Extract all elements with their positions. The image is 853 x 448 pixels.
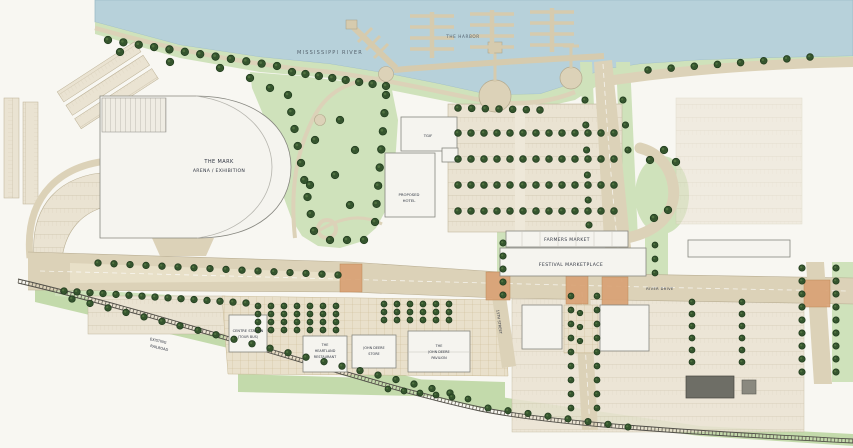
label-river: MISSISSIPPI RIVER (297, 50, 363, 56)
industrial-building (686, 376, 734, 398)
label-hotel-1: PROPOSED (399, 192, 420, 197)
label-tgif: TGIF (423, 133, 433, 138)
east-block-building-b (600, 305, 649, 351)
label-river-drive: RIVER DRIVE (646, 287, 674, 291)
label-heartland-1: THE (321, 343, 329, 347)
arena-entry-plaza (152, 238, 214, 256)
intersection-paving (566, 276, 588, 304)
label-pavilion-2: JOHN DEERE (427, 350, 449, 354)
label-farmers-market: FARMERS MARKET (544, 237, 590, 243)
label-pavilion-3: PAVILION (431, 356, 447, 360)
industrial-shed (742, 380, 756, 394)
northeast-parking-field (676, 98, 802, 224)
label-hotel-2: HOTEL (403, 198, 417, 203)
intersection-paving (804, 280, 830, 307)
hotel-building (385, 153, 435, 217)
site-plan-map: MISSISSIPPI RIVER THE HARBOR THE MARK AR… (0, 0, 853, 448)
label-arena-1: THE MARK (203, 159, 234, 165)
label-deere-store-1: JOHN DEERE (362, 346, 384, 350)
east-strip-building (688, 240, 790, 257)
label-centre-station-1: CENTRE STATION (233, 329, 264, 333)
intersection-paving (340, 264, 362, 292)
label-deere-store-2: STORE (368, 352, 379, 356)
arena-service-deck (102, 98, 166, 132)
site-plan-canvas: MISSISSIPPI RIVER THE HARBOR THE MARK AR… (0, 0, 853, 448)
label-harbor: THE HARBOR (445, 34, 480, 39)
label-heartland-3: RESTAURANT (314, 355, 337, 359)
label-heartland-2: HEARTLAND (315, 349, 336, 353)
east-block-building-a (522, 305, 562, 349)
label-centre-station-2: (TOUR BUS) (238, 335, 259, 339)
label-festival-marketplace: FESTIVAL MARKETPLACE (539, 262, 603, 268)
intersection-paving (602, 277, 628, 305)
festival-marketplace-building (500, 248, 646, 276)
label-pavilion-1: THE (435, 344, 443, 348)
label-arena-2: ARENA / EXHIBITION (193, 168, 245, 174)
centre-station-building (229, 315, 267, 352)
